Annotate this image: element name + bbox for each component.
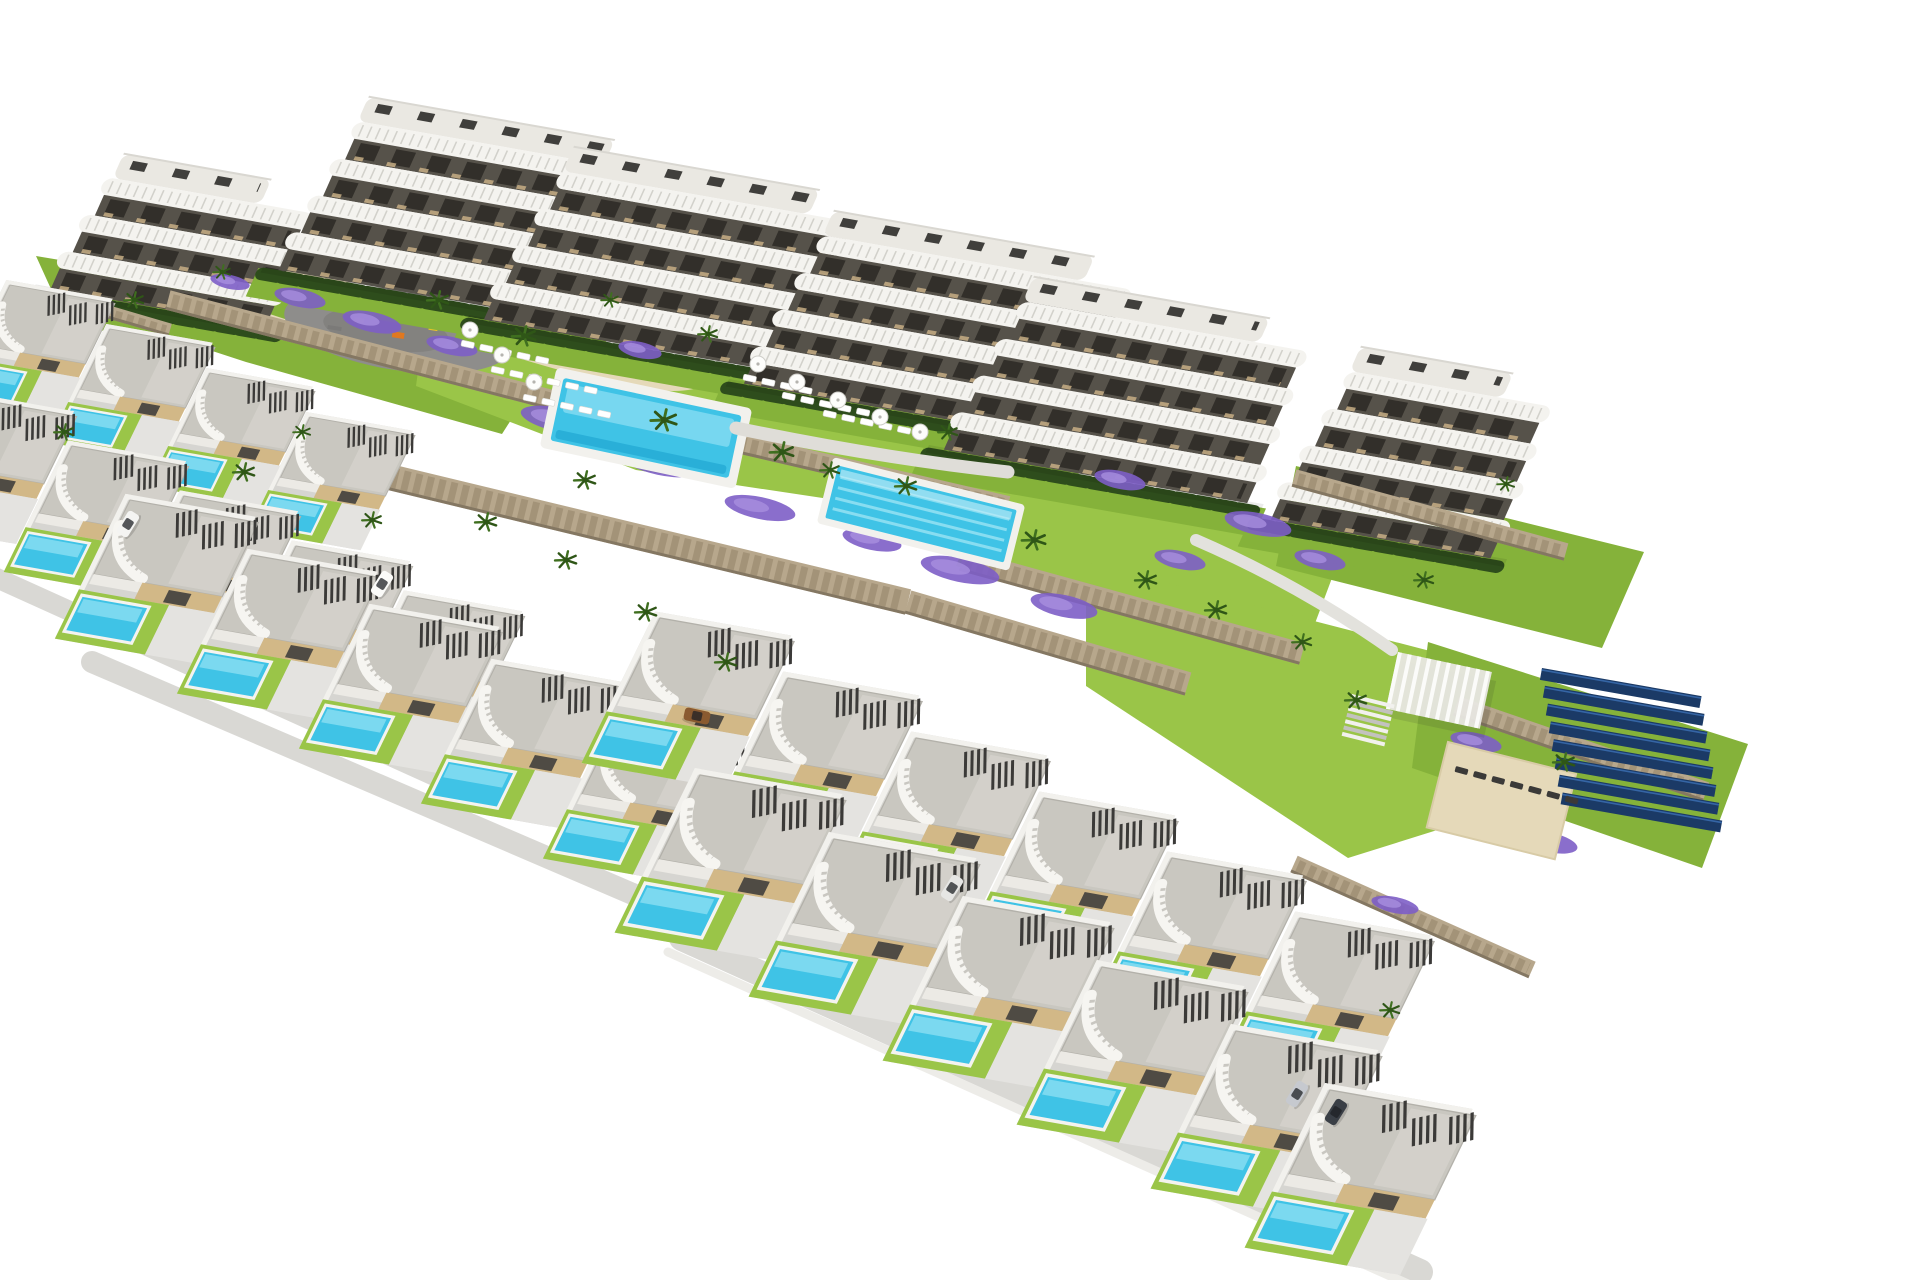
- scene-root: [0, 0, 1920, 1280]
- parasol: [789, 374, 805, 390]
- parasol: [494, 347, 510, 363]
- parasol: [912, 424, 928, 440]
- parasol: [872, 409, 888, 425]
- parasol: [526, 374, 542, 390]
- development-aerial-render: [0, 0, 1920, 1280]
- parasol: [830, 392, 846, 408]
- parasol: [462, 322, 478, 338]
- scene-canvas: [0, 0, 1920, 1280]
- parasol: [750, 356, 766, 372]
